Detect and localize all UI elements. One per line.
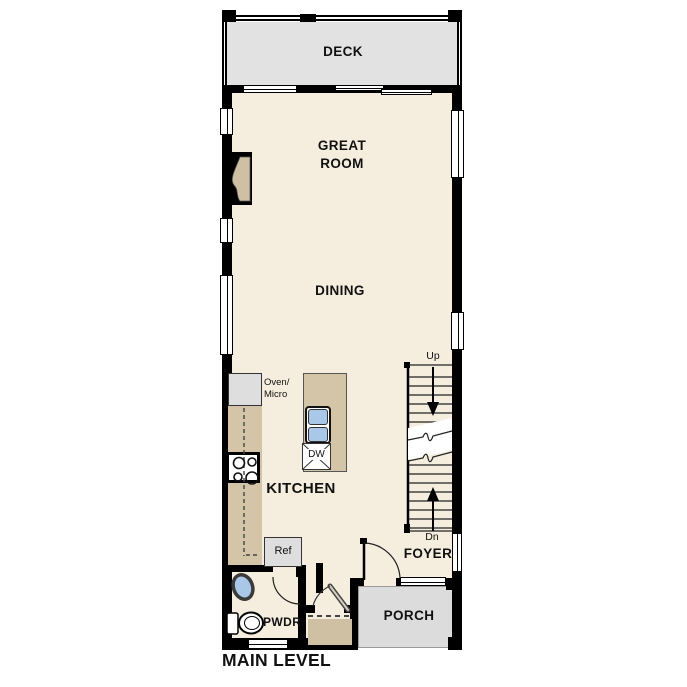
great-room-label: GREAT ROOM — [292, 137, 392, 173]
dining-label: DINING — [290, 283, 390, 298]
floor-plan: DECK GREAT ROOM DINING KITCHEN FOYER POR… — [0, 0, 687, 687]
powder-label: PWDR — [263, 615, 309, 629]
refrigerator-label: Ref — [264, 545, 302, 557]
kitchen-label: KITCHEN — [251, 480, 351, 497]
stairs-up-label: Up — [420, 350, 446, 362]
porch-label: PORCH — [368, 608, 450, 623]
foyer-label: FOYER — [387, 546, 469, 561]
dishwasher-label-text: DW — [307, 449, 326, 460]
dishwasher-label: DW — [302, 449, 331, 460]
stairs-down-arrow — [427, 367, 439, 416]
toilet-icon — [227, 613, 263, 635]
plan-title: MAIN LEVEL — [222, 650, 382, 671]
stairs-down-label: Dn — [419, 531, 445, 543]
plan-linework — [0, 0, 687, 687]
stairs-up-arrow — [427, 487, 439, 531]
powder-door — [273, 577, 300, 604]
closet-door — [313, 586, 348, 610]
powder-sink-icon — [230, 572, 256, 602]
oven-micro-label: Oven/ Micro — [264, 377, 306, 400]
staircase — [404, 362, 452, 533]
deck-label: DECK — [298, 44, 388, 59]
fireplace-niche — [232, 157, 250, 201]
